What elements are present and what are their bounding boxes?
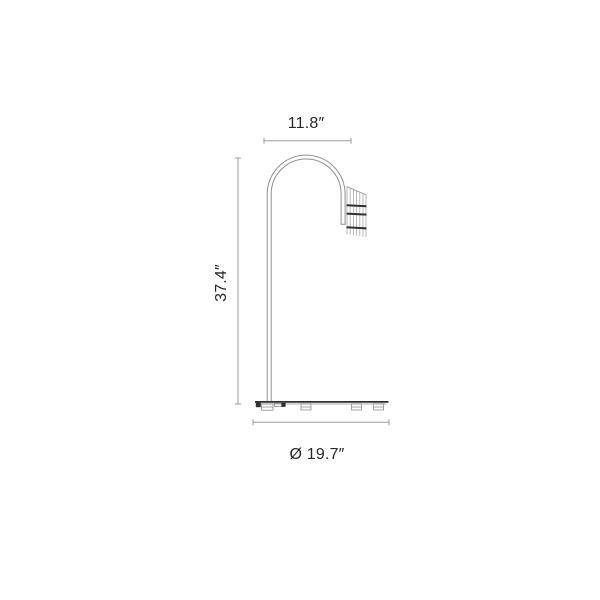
lamp-arc-tube bbox=[267, 155, 346, 402]
height-dimension-line bbox=[235, 158, 241, 404]
top-width-dimension-line bbox=[264, 138, 351, 144]
dimension-lines bbox=[235, 138, 389, 426]
lamp-base bbox=[255, 402, 389, 410]
height-dimension-label: 37.4″ bbox=[214, 264, 230, 302]
base-diameter-dimension-label: Ø 19.7″ bbox=[289, 447, 344, 463]
top-width-dimension-label: 11.8″ bbox=[288, 116, 325, 132]
dimension-drawing: 11.8″ 37.4″ Ø 19.7″ bbox=[0, 0, 600, 600]
lamp-line-art bbox=[0, 0, 600, 600]
lamp-shade-cage bbox=[347, 187, 367, 238]
base-diameter-dimension-line bbox=[253, 419, 389, 425]
